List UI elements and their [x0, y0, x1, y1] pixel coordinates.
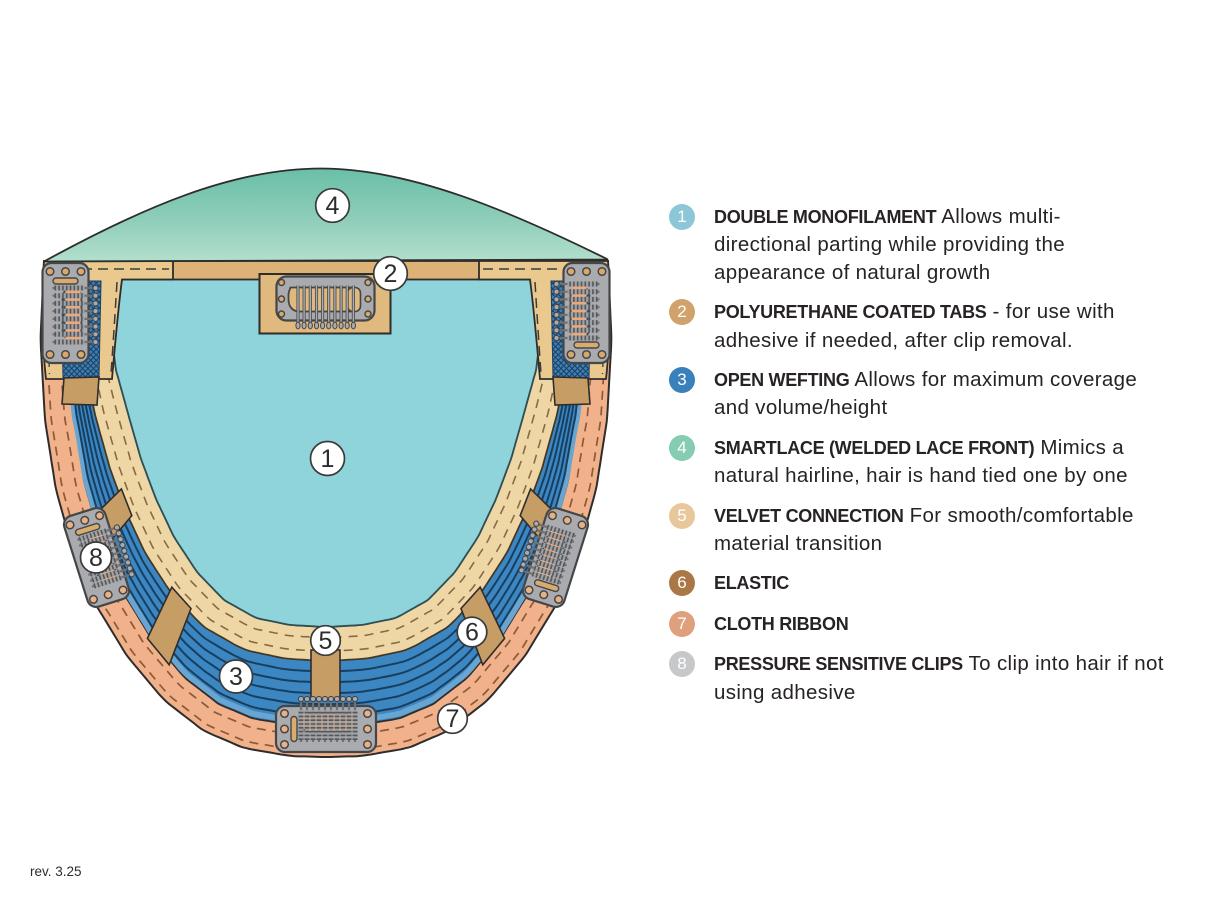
svg-text:4: 4 [326, 192, 340, 220]
svg-text:8: 8 [89, 544, 103, 572]
svg-text:1: 1 [321, 445, 335, 473]
svg-text:2: 2 [384, 260, 398, 288]
svg-text:3: 3 [229, 663, 243, 691]
svg-text:6: 6 [465, 619, 479, 647]
svg-text:7: 7 [446, 705, 460, 733]
svg-text:5: 5 [319, 627, 333, 655]
